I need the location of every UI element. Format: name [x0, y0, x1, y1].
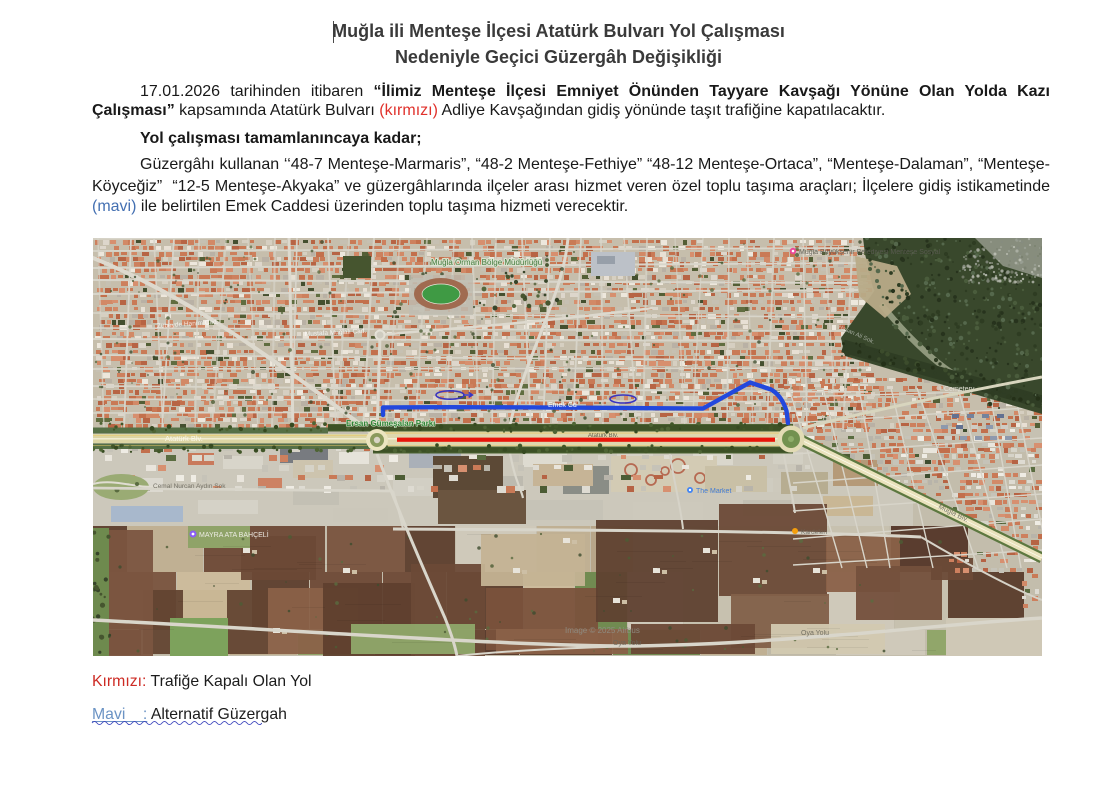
svg-text:Ersan Gümeşalan Parkı: Ersan Gümeşalan Parkı [346, 419, 435, 428]
svg-text:Atatürk Blv.: Atatürk Blv. [165, 434, 203, 443]
svg-text:MAYRA ATA BAHÇELİ: MAYRA ATA BAHÇELİ [199, 530, 269, 539]
svg-text:Emek Cd: Emek Cd [548, 402, 577, 409]
svg-text:Atatürk Blv.: Atatürk Blv. [588, 433, 619, 439]
svg-text:Muğla Orman Bölge Müdürlüğü: Muğla Orman Bölge Müdürlüğü [431, 258, 542, 267]
svg-text:Muğla Büyükşehir Belediyesi Me: Muğla Büyükşehir Belediyesi Menteşe Sosy… [799, 249, 941, 256]
